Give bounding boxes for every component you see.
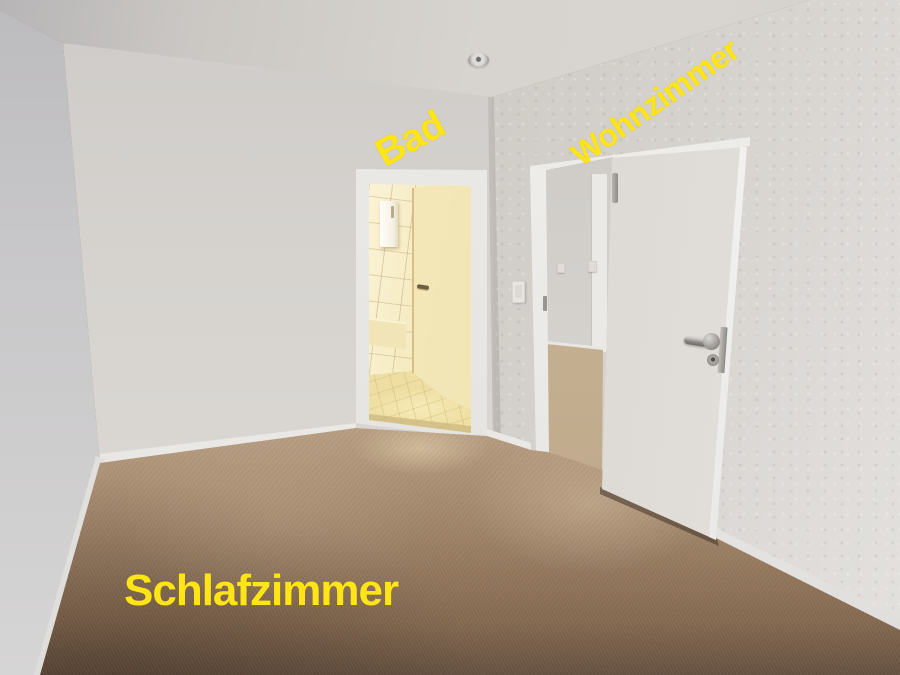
door-handle-rose bbox=[703, 333, 720, 350]
door-keyhole bbox=[707, 354, 719, 366]
door-hinge bbox=[612, 173, 618, 203]
wall-socket bbox=[557, 263, 565, 273]
light-switch-rocker bbox=[515, 285, 522, 298]
bathroom-door-edge bbox=[412, 188, 414, 373]
bathtub-edge bbox=[369, 318, 406, 350]
door-frame-hinge bbox=[543, 296, 547, 311]
apartment-room-photo: Bad Wohnzimmer Schlafzimmer bbox=[0, 0, 900, 675]
wall-socket bbox=[588, 261, 597, 272]
bedroom-label: Schlafzimmer bbox=[124, 569, 398, 613]
ceiling-light-fixture bbox=[468, 53, 489, 67]
water-heater-vent bbox=[391, 206, 394, 218]
water-heater bbox=[380, 201, 398, 247]
